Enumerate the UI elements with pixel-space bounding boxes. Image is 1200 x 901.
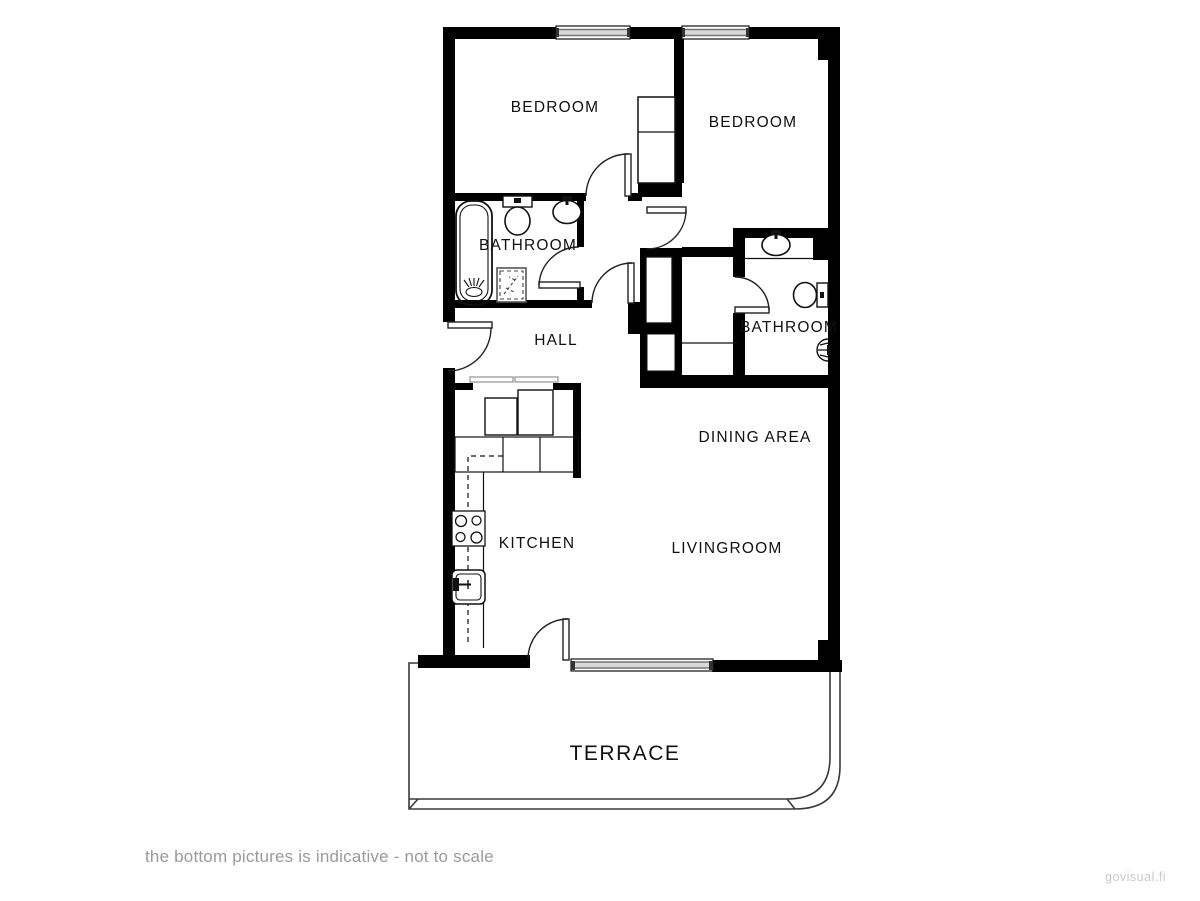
wall-right-top-notch <box>818 39 840 60</box>
wall-kitchen-north-right <box>553 383 581 390</box>
wall-kitchen-north-left <box>448 383 473 390</box>
door-swing-icon <box>586 154 631 196</box>
door-swing-icon <box>448 322 492 371</box>
shower-tray-icon <box>497 268 526 302</box>
door-swing-icon <box>528 619 569 660</box>
wall-left-upper <box>443 27 455 322</box>
room-label-bedroom-left: BEDROOM <box>511 99 600 116</box>
wall-bathroom1-east-lower <box>577 287 584 308</box>
toilet-icon <box>503 196 532 235</box>
watermark: govisual.fi <box>1105 870 1166 884</box>
room-label-terrace: TERRACE <box>570 742 681 765</box>
window-icon <box>682 26 749 39</box>
wall-shaft-left <box>640 334 647 371</box>
window-icon <box>571 659 713 671</box>
wall-bathroom2-south <box>640 375 830 388</box>
wardrobe-icon <box>485 390 553 435</box>
room-label-bathroom-left: BATHROOM <box>479 237 577 254</box>
wall-vestibule-band <box>640 248 682 257</box>
wardrobe-icon <box>638 97 675 183</box>
wall-bathroom1-east-upper <box>577 195 584 247</box>
room-label-kitchen: KITCHEN <box>499 535 575 552</box>
terrace-outline <box>409 663 840 809</box>
kitchen-sink-icon <box>452 570 485 604</box>
wall-right-bottom-notch <box>818 640 830 662</box>
wall-shaft-right <box>675 334 682 371</box>
room-label-dining-area: DINING AREA <box>698 429 811 446</box>
door-swing-icon <box>647 207 686 249</box>
wall-closetB-east <box>672 257 682 334</box>
wall-kitchen-east <box>573 390 581 478</box>
wardrobe-icon <box>646 257 672 323</box>
floor-plan-image: BEDROOM BEDROOM BATHROOM HALL BATHROOM D… <box>0 0 1200 901</box>
stove-icon <box>452 511 485 546</box>
door-swing-icon <box>592 263 634 303</box>
wall-band <box>628 323 682 334</box>
toilet-icon <box>794 283 829 308</box>
room-label-hall: HALL <box>534 332 578 349</box>
wall-bathroom2-west-upper <box>733 228 745 277</box>
caption-note: the bottom pictures is indicative - not … <box>145 847 494 866</box>
wall-bedroom2-south <box>682 247 737 257</box>
duct-shaft <box>647 334 675 371</box>
room-label-bedroom-right: BEDROOM <box>709 114 798 131</box>
wall-bathroom2-chunk <box>813 238 830 260</box>
wall-top <box>443 27 840 39</box>
wall-bottom-kitchen <box>418 655 530 668</box>
wall-right <box>828 39 840 672</box>
floor-plan-page: BEDROOM BEDROOM BATHROOM HALL BATHROOM D… <box>0 0 1200 901</box>
kitchen-fixtures <box>452 377 578 648</box>
wall-closet-block <box>638 183 682 197</box>
sliding-closet-icon <box>470 377 558 382</box>
room-label-livingroom: LIVINGROOM <box>671 540 782 557</box>
window-icon <box>556 26 630 39</box>
door-swing-icon <box>735 277 769 313</box>
room-label-bathroom-right: BATHROOM <box>740 319 838 336</box>
